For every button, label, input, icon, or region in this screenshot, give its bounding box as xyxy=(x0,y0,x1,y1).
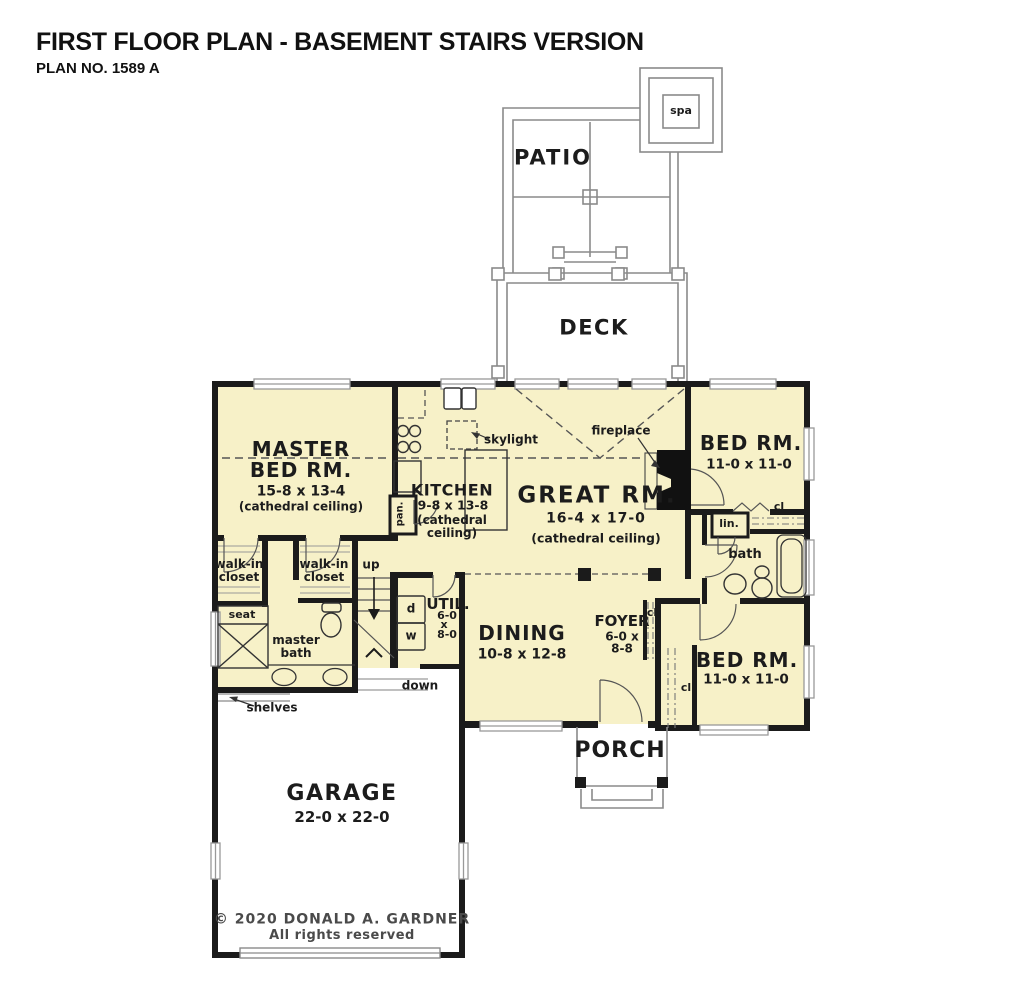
floor-plan-page: FIRST FLOOR PLAN - BASEMENT STAIRS VERSI… xyxy=(0,0,1024,1008)
stairs-down-label: down xyxy=(402,680,438,693)
kitchen-dims: 9-8 x 13-8 xyxy=(418,498,489,512)
kitchen-sink xyxy=(444,388,476,409)
seat-label: seat xyxy=(229,609,256,621)
walk-in-closet-2-label: walk-in closet xyxy=(295,558,353,584)
garage-dims: 22-0 x 22-0 xyxy=(294,809,389,825)
foyer-dims-line2: 8-8 xyxy=(611,643,633,656)
master-bed-note: (cathedral ceiling) xyxy=(239,501,363,514)
dining-name: DINING xyxy=(478,623,565,645)
pantry-label: pan. xyxy=(396,502,407,527)
patio-label: PATIO xyxy=(514,147,592,170)
linen-label: lin. xyxy=(719,518,739,530)
master-bed-dims: 15-8 x 13-4 xyxy=(257,484,346,499)
great-rm-name: GREAT RM. xyxy=(517,484,676,509)
shelves-label: shelves xyxy=(246,702,297,715)
page-title: FIRST FLOOR PLAN - BASEMENT STAIRS VERSI… xyxy=(36,28,644,57)
master-bed-name-line2: BED RM. xyxy=(250,460,352,482)
fireplace-label: fireplace xyxy=(591,425,650,438)
master-bath-label: master bath xyxy=(269,634,323,660)
kitchen-note: (cathedral ceiling) xyxy=(412,514,492,540)
deck-label: DECK xyxy=(559,317,628,340)
foyer-name: FOYER xyxy=(594,613,649,629)
spa-label: spa xyxy=(670,105,692,117)
garage-door xyxy=(240,948,440,958)
rights-line: All rights reserved xyxy=(269,929,415,943)
util-dims-line3: 8-0 xyxy=(437,629,457,641)
kitchen-name: KITCHEN xyxy=(411,481,493,498)
closet-label-foyer: cl xyxy=(647,607,657,619)
dryer-label: d xyxy=(407,603,416,616)
great-rm-dims: 16-4 x 17-0 xyxy=(546,511,646,526)
skylight-label: skylight xyxy=(484,434,538,447)
stairs-up-label: up xyxy=(362,559,379,572)
closet-label-bed-upper: cl xyxy=(774,501,784,513)
closet-label-bed-lower: cl xyxy=(681,682,691,694)
bed-rm-upper-dims: 11-0 x 11-0 xyxy=(706,458,792,473)
porch-label: PORCH xyxy=(574,739,665,763)
dining-dims: 10-8 x 12-8 xyxy=(478,647,567,662)
garage-name: GARAGE xyxy=(286,782,397,806)
bed-rm-lower-name: BED RM. xyxy=(696,650,798,672)
plan-number: PLAN NO. 1589 A xyxy=(36,60,160,77)
bed-rm-upper-name: BED RM. xyxy=(700,433,802,455)
great-rm-note: (cathedral ceiling) xyxy=(531,531,660,545)
washer-label: w xyxy=(405,630,416,643)
copyright-line: © 2020 DONALD A. GARDNER xyxy=(214,912,470,927)
walk-in-closet-1-label: walk-in closet xyxy=(210,558,268,584)
bath-label: bath xyxy=(728,548,762,562)
floor-plan-drawing xyxy=(0,0,1024,1008)
bed-rm-lower-dims: 11-0 x 11-0 xyxy=(703,673,789,688)
